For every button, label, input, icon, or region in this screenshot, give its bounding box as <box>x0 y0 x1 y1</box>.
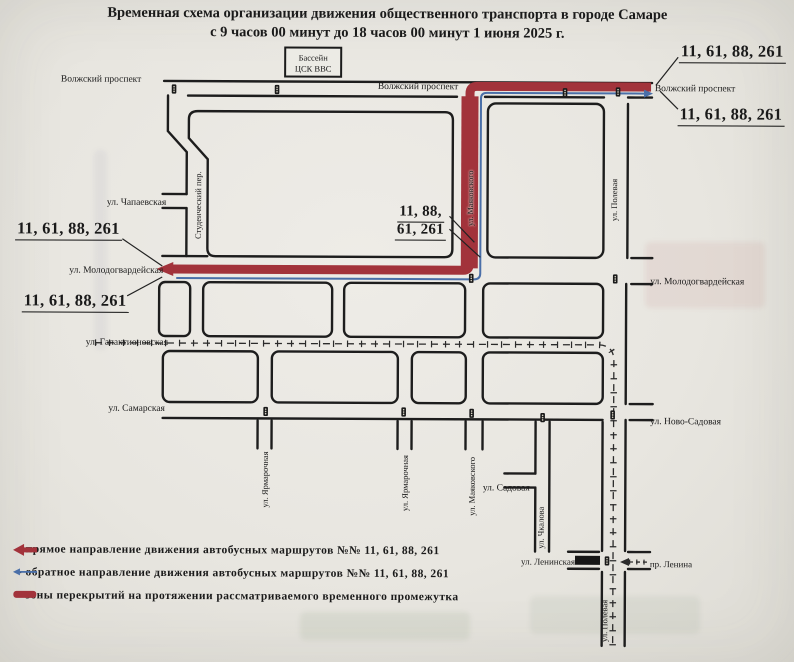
city-block <box>483 352 603 404</box>
legend-closure-text: - зоны перекрытий на протяжении рассматр… <box>18 589 459 603</box>
traffic-light-icon <box>172 84 177 93</box>
traffic-light-icon <box>401 407 406 416</box>
traffic-light-icon <box>605 556 610 565</box>
city-block <box>203 282 332 337</box>
street-label-studencheskiy: Студенческий пер. <box>194 171 203 239</box>
route-numbers-top-right-1: 11, 61, 88, 261 <box>679 41 786 63</box>
city-block <box>159 282 190 336</box>
street-label-polevaya-north: ул. Полевая <box>610 179 619 221</box>
traffic-light-icon <box>616 87 621 96</box>
traffic-light-icon <box>469 274 474 283</box>
road-line <box>163 418 603 420</box>
street-label-chapaevskaya: ул. Чапаевская <box>107 198 166 208</box>
closed-segment-bar <box>575 556 600 565</box>
street-label-yarmarochnaya-2: ул. Ярмарочная <box>401 455 410 511</box>
street-label-leninskaya: ул. Ленинская <box>521 557 575 567</box>
street-label-novo-sadovaya: ул. Ново-Садовая <box>650 417 721 427</box>
street-label-mayakovskogo-south: ул. Маяковского <box>468 457 477 516</box>
street-label-chkalova: ул. Чкалова <box>537 507 546 549</box>
road-line <box>602 284 627 646</box>
route-numbers-left-1: 11, 61, 88, 261 <box>15 218 122 240</box>
road-line <box>397 421 411 449</box>
street-label-molodogvardeyskaya-right: ул. Молодогвардейская <box>650 277 744 287</box>
lenina-arrowhead <box>620 558 629 566</box>
traffic-light-icon <box>613 274 618 283</box>
pool-box-line2: ЦСК ВВС <box>286 63 340 74</box>
city-block <box>272 351 398 403</box>
traffic-light-icon <box>540 413 545 422</box>
street-label-sadovaya: ул. Садовая <box>483 483 530 493</box>
street-label-yarmarochnaya-1: ул. Ярмарочная <box>261 451 270 507</box>
pool-box-line1: Бассейн <box>286 53 340 64</box>
reverse-route-path <box>176 88 653 281</box>
legend-row-reverse: - обратное направление движения автобусн… <box>13 566 449 580</box>
traffic-light-icon <box>469 409 474 418</box>
legend-row-closure: - зоны перекрытий на протяжении рассматр… <box>13 589 459 603</box>
route-numbers-center-line2: 61, 261 <box>395 221 446 240</box>
road-line <box>257 420 271 448</box>
city-block <box>344 283 465 338</box>
road-line <box>167 95 187 256</box>
map-layer: Временная схема организации движения общ… <box>0 0 794 662</box>
scheme-title-line2: с 9 часов 00 минут до 18 часов 00 минут … <box>1 22 773 44</box>
pool-box: Бассейн ЦСК ВВС <box>284 47 342 78</box>
traffic-light-icon <box>263 407 268 416</box>
city-block <box>487 103 604 258</box>
street-label-molodogvardeyskaya-left: ул. Молодогвардейская <box>69 266 163 276</box>
street-label-volzhsky-right: Волжский проспект <box>655 84 735 94</box>
street-label-volzhsky-left: Волжский проспект <box>61 75 141 85</box>
city-block <box>483 283 603 338</box>
legend-direct-text: - прямое направление движения автобусных… <box>18 543 440 557</box>
traffic-light-icon <box>563 88 568 97</box>
legend-row-direct: - прямое направление движения автобусных… <box>13 543 440 557</box>
route-numbers-left-2: 11, 61, 88, 261 <box>22 290 129 312</box>
route-numbers-center-line1: 11, 88, <box>397 204 444 223</box>
street-label-lenina: пр. Ленина <box>650 559 692 569</box>
road-line <box>465 421 482 449</box>
scheme-photo: Временная схема организации движения общ… <box>0 0 794 662</box>
traffic-lights <box>170 84 621 565</box>
closure-zone-path <box>156 85 651 278</box>
traffic-light-icon <box>275 85 280 94</box>
road-line <box>627 104 628 258</box>
city-block <box>412 352 466 403</box>
traffic-light-icon <box>610 410 615 419</box>
legend-reverse-text: - обратное направление движения автобусн… <box>18 566 449 580</box>
street-label-galaktionovskaya: ул. Галактионовская <box>86 338 168 348</box>
street-label-volzhsky-center: Волжский проспект <box>378 82 458 92</box>
street-label-samarskaya: ул. Самарская <box>108 404 165 414</box>
city-block <box>163 351 258 402</box>
road-line <box>188 96 652 98</box>
street-label-polevaya-south: ул. Полевая <box>600 600 609 642</box>
route-numbers-top-right-2: 11, 61, 88, 261 <box>678 104 785 126</box>
street-label-mayakovskogo-north: ул. Маяковского <box>466 171 475 226</box>
road-line <box>631 258 652 284</box>
